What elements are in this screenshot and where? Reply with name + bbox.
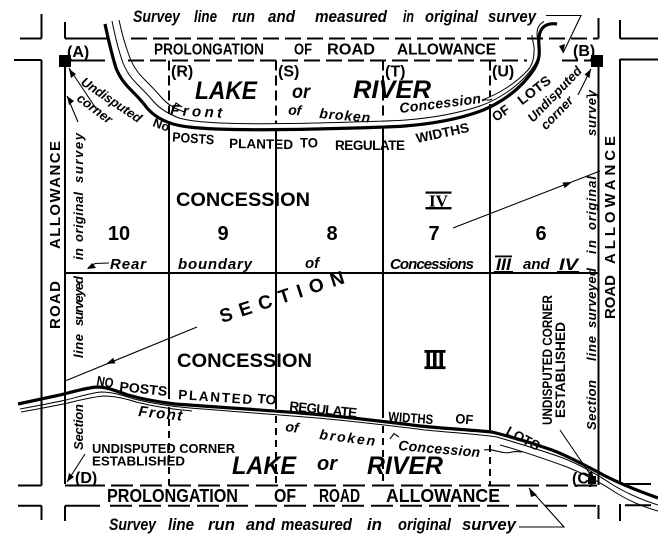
svg-text:and: and (523, 256, 551, 273)
svg-text:ALLOWANCE: ALLOWANCE (47, 141, 64, 249)
svg-text:(U): (U) (492, 64, 514, 81)
svg-text:WIDTHS: WIDTHS (388, 409, 434, 427)
svg-text:(D): (D) (75, 470, 97, 487)
svg-text:(A): (A) (67, 44, 89, 61)
svg-text:survey: survey (462, 516, 517, 534)
svg-text:ALLOWANCE: ALLOWANCE (602, 136, 619, 264)
svg-text:ALLOWANCE: ALLOWANCE (397, 42, 496, 59)
svg-text:TO: TO (300, 136, 318, 151)
svg-text:of: of (285, 418, 301, 436)
svg-text:(S): (S) (278, 64, 299, 81)
svg-text:OF: OF (455, 411, 474, 428)
svg-text:or: or (317, 453, 338, 475)
svg-text:Survey: Survey (133, 8, 181, 26)
svg-text:9: 9 (217, 223, 228, 245)
svg-text:run: run (232, 8, 255, 26)
svg-text:line: line (194, 8, 217, 26)
svg-text:(R): (R) (171, 64, 193, 81)
svg-text:OF: OF (294, 42, 312, 59)
svg-text:boundary: boundary (178, 256, 253, 273)
svg-text:survey: survey (71, 132, 86, 183)
svg-text:PLANTED: PLANTED (229, 136, 294, 152)
svg-text:LOTS: LOTS (504, 423, 543, 453)
svg-text:7: 7 (428, 223, 439, 245)
svg-text:in: in (367, 516, 382, 534)
svg-text:ESTABLISHED: ESTABLISHED (552, 322, 568, 418)
svg-text:ESTABLISHED: ESTABLISHED (92, 454, 185, 469)
svg-text:or: or (292, 82, 312, 103)
svg-text:and: and (246, 516, 276, 534)
svg-text:8: 8 (326, 223, 337, 245)
svg-text:survey: survey (584, 89, 599, 136)
svg-text:PROLONGATION: PROLONGATION (107, 486, 238, 506)
svg-text:CONCESSION: CONCESSION (176, 190, 310, 211)
svg-text:line: line (71, 334, 86, 358)
svg-text:LAKE: LAKE (232, 452, 297, 480)
svg-text:REGULATE: REGULATE (335, 138, 405, 153)
svg-text:line: line (584, 336, 599, 361)
svg-text:original: original (425, 8, 478, 26)
svg-text:ROAD: ROAD (602, 275, 619, 319)
svg-text:CONCESSION: CONCESSION (177, 351, 312, 372)
svg-text:surveyed: surveyed (71, 275, 86, 326)
svg-text:POSTS: POSTS (172, 130, 215, 148)
svg-text:broken: broken (319, 426, 377, 449)
svg-text:run: run (208, 516, 235, 534)
svg-text:OF: OF (274, 486, 296, 506)
svg-text:ROAD: ROAD (319, 486, 360, 506)
svg-text:PROLONGATION: PROLONGATION (154, 42, 264, 59)
svg-text:in: in (71, 248, 86, 260)
svg-text:measured: measured (315, 8, 388, 26)
svg-text:in: in (584, 240, 599, 254)
svg-text:ALLOWANCE: ALLOWANCE (386, 486, 500, 506)
svg-text:SECTION: SECTION (217, 268, 347, 328)
svg-text:LAKE: LAKE (195, 77, 258, 105)
svg-text:original: original (584, 176, 599, 230)
svg-text:surveyed: surveyed (584, 267, 599, 328)
svg-text:6: 6 (535, 223, 546, 245)
svg-text:in: in (403, 8, 414, 26)
svg-text:ROAD: ROAD (47, 281, 64, 329)
svg-text:and: and (268, 8, 296, 26)
svg-text:of: of (288, 102, 303, 119)
svg-text:survey: survey (488, 8, 537, 26)
svg-text:ROAD: ROAD (327, 42, 375, 59)
svg-text:(B): (B) (573, 43, 595, 60)
svg-text:Section: Section (71, 404, 86, 450)
svg-text:(C): (C) (572, 471, 594, 488)
svg-text:Rear: Rear (110, 256, 147, 273)
svg-text:TO: TO (257, 391, 277, 408)
svg-text:NO: NO (95, 373, 114, 391)
svg-text:Concessions: Concessions (390, 256, 474, 273)
svg-text:line: line (168, 516, 194, 534)
svg-text:Survey: Survey (109, 516, 157, 534)
svg-text:RIVER: RIVER (367, 452, 443, 480)
svg-text:measured: measured (281, 516, 353, 534)
svg-text:Section: Section (584, 380, 599, 430)
svg-text:original: original (398, 516, 451, 534)
svg-text:REGULATE: REGULATE (289, 399, 358, 421)
svg-text:original: original (71, 192, 86, 242)
svg-text:of: of (305, 255, 321, 272)
svg-text:10: 10 (108, 223, 130, 245)
